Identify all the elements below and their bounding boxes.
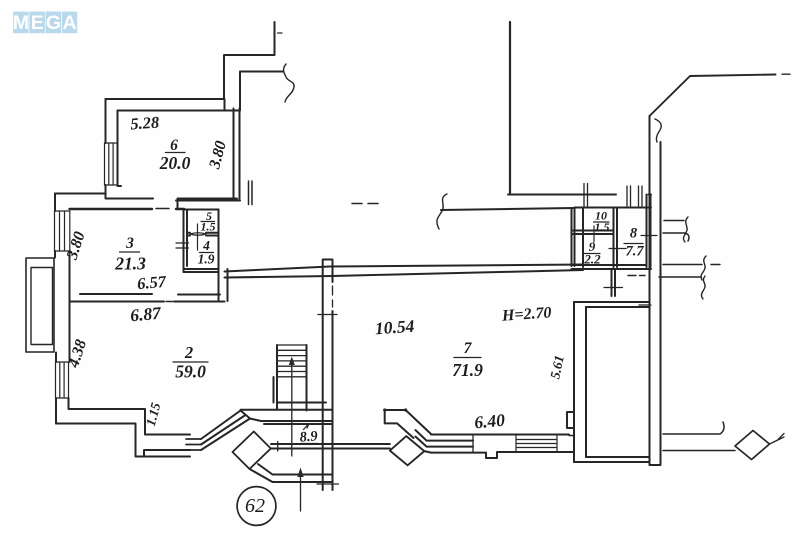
svg-text:6.87: 6.87 [129, 303, 162, 326]
svg-text:2: 2 [184, 343, 193, 362]
svg-text:21.3: 21.3 [114, 254, 146, 274]
svg-text:6.40: 6.40 [473, 410, 506, 433]
svg-text:A: A [63, 12, 77, 34]
svg-text:H=2.70: H=2.70 [500, 304, 552, 324]
svg-text:71.9: 71.9 [452, 360, 483, 380]
svg-text:7.7: 7.7 [625, 244, 644, 260]
svg-text:10.54: 10.54 [374, 316, 415, 339]
svg-text:6.57: 6.57 [136, 272, 167, 294]
svg-text:1.9: 1.9 [198, 252, 215, 267]
svg-text:M: M [13, 12, 29, 34]
svg-text:8: 8 [630, 226, 638, 242]
svg-text:20.0: 20.0 [159, 153, 191, 173]
svg-text:59.0: 59.0 [175, 362, 206, 382]
svg-text:E: E [31, 12, 44, 34]
svg-text:5.28: 5.28 [130, 113, 160, 134]
svg-text:6: 6 [170, 137, 178, 154]
svg-text:7: 7 [464, 340, 473, 357]
svg-text:3: 3 [125, 235, 134, 252]
svg-text:G: G [46, 12, 61, 34]
svg-text:62: 62 [245, 495, 265, 517]
